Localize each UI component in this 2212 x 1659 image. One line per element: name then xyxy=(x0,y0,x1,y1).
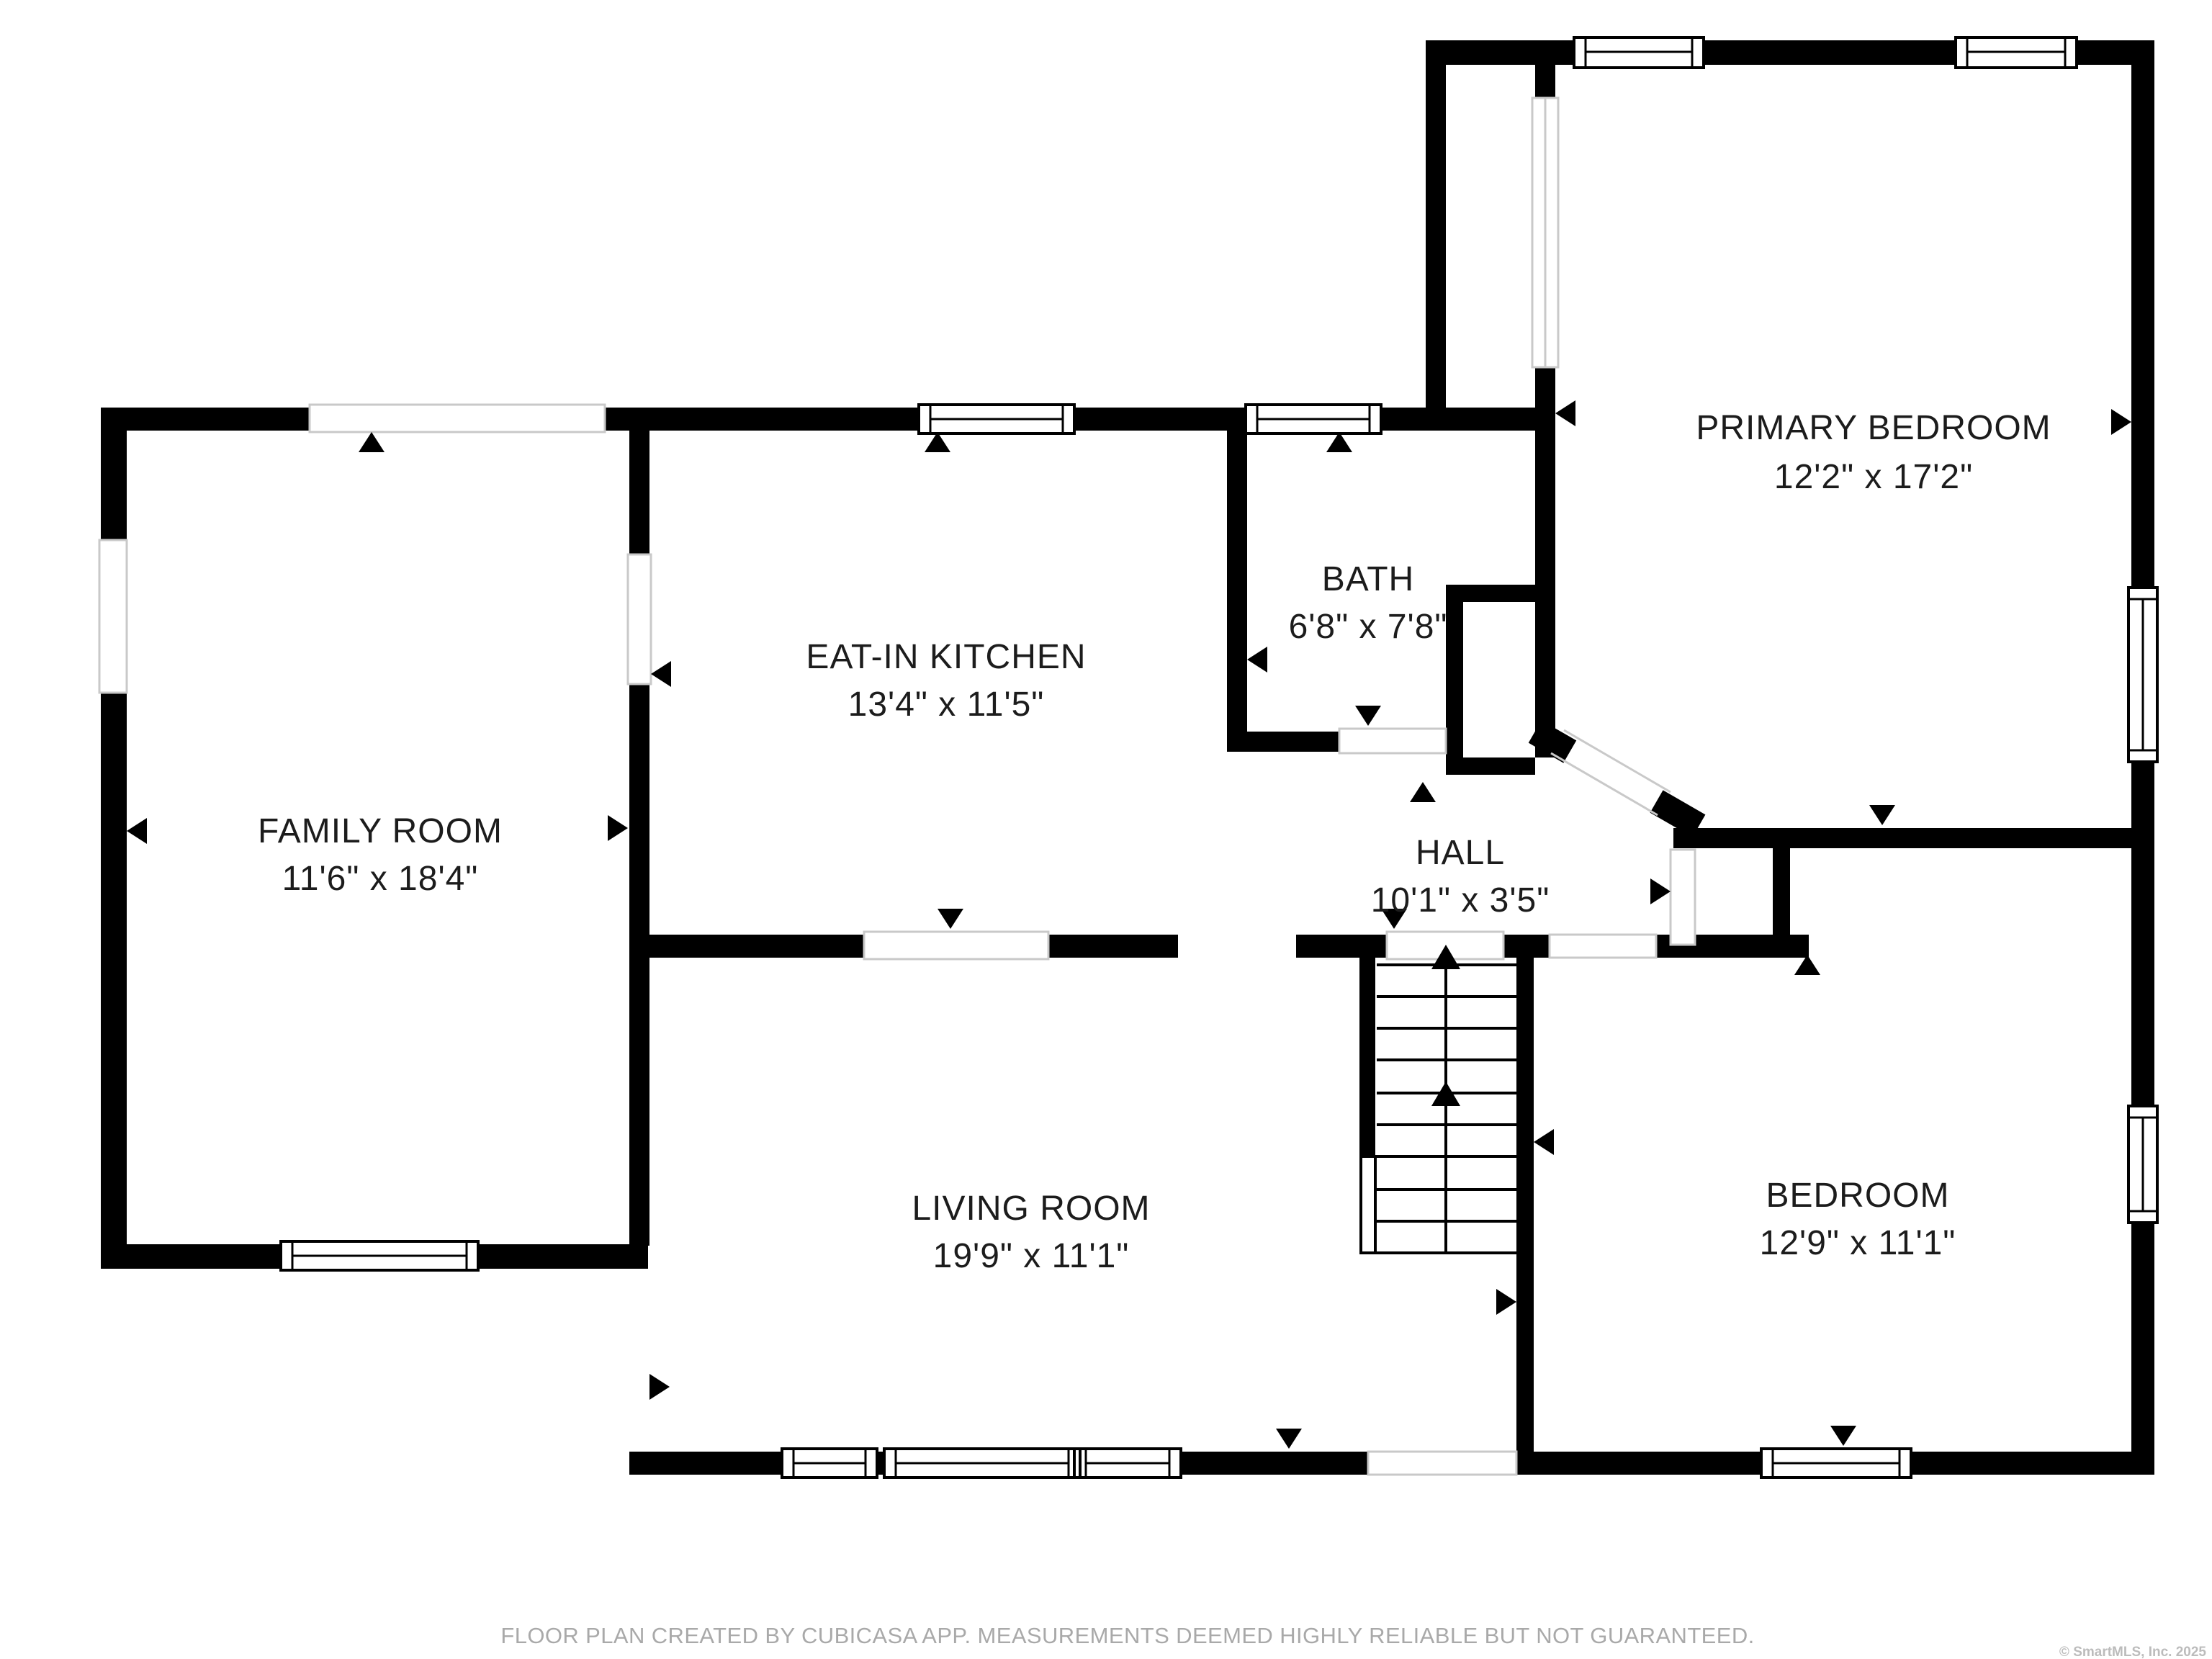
room-label-living-room: LIVING ROOM xyxy=(912,1190,1150,1228)
room-label-family-room: FAMILY ROOM xyxy=(258,812,503,850)
room-dims-bedroom: 12'9" x 11'1" xyxy=(1760,1224,1956,1262)
floor-plan-canvas: FAMILY ROOM 11'6" x 18'4" EAT-IN KITCHEN… xyxy=(0,0,2212,1659)
room-label-hall: HALL xyxy=(1416,834,1505,872)
room-label-bath: BATH xyxy=(1322,560,1414,598)
room-dims-family-room: 11'6" x 18'4" xyxy=(282,860,479,898)
room-label-primary-bedroom: PRIMARY BEDROOM xyxy=(1696,409,2051,447)
copyright-notice: © SmartMLS, Inc. 2025 xyxy=(2059,1645,2207,1659)
room-dims-living-room: 19'9" x 11'1" xyxy=(933,1237,1130,1275)
room-dims-bath: 6'8" x 7'8" xyxy=(1289,608,1448,646)
room-dims-hall: 10'1" x 3'5" xyxy=(1371,881,1550,920)
room-label-eat-in-kitchen: EAT-IN KITCHEN xyxy=(806,638,1086,676)
room-dims-primary-bedroom: 12'2" x 17'2" xyxy=(1774,458,1973,496)
stair-railing xyxy=(1361,1156,1375,1253)
room-dims-eat-in-kitchen: 13'4" x 11'5" xyxy=(848,685,1045,724)
footer-disclaimer: FLOOR PLAN CREATED BY CUBICASA APP. MEAS… xyxy=(500,1623,1754,1648)
room-label-bedroom: BEDROOM xyxy=(1766,1177,1949,1215)
